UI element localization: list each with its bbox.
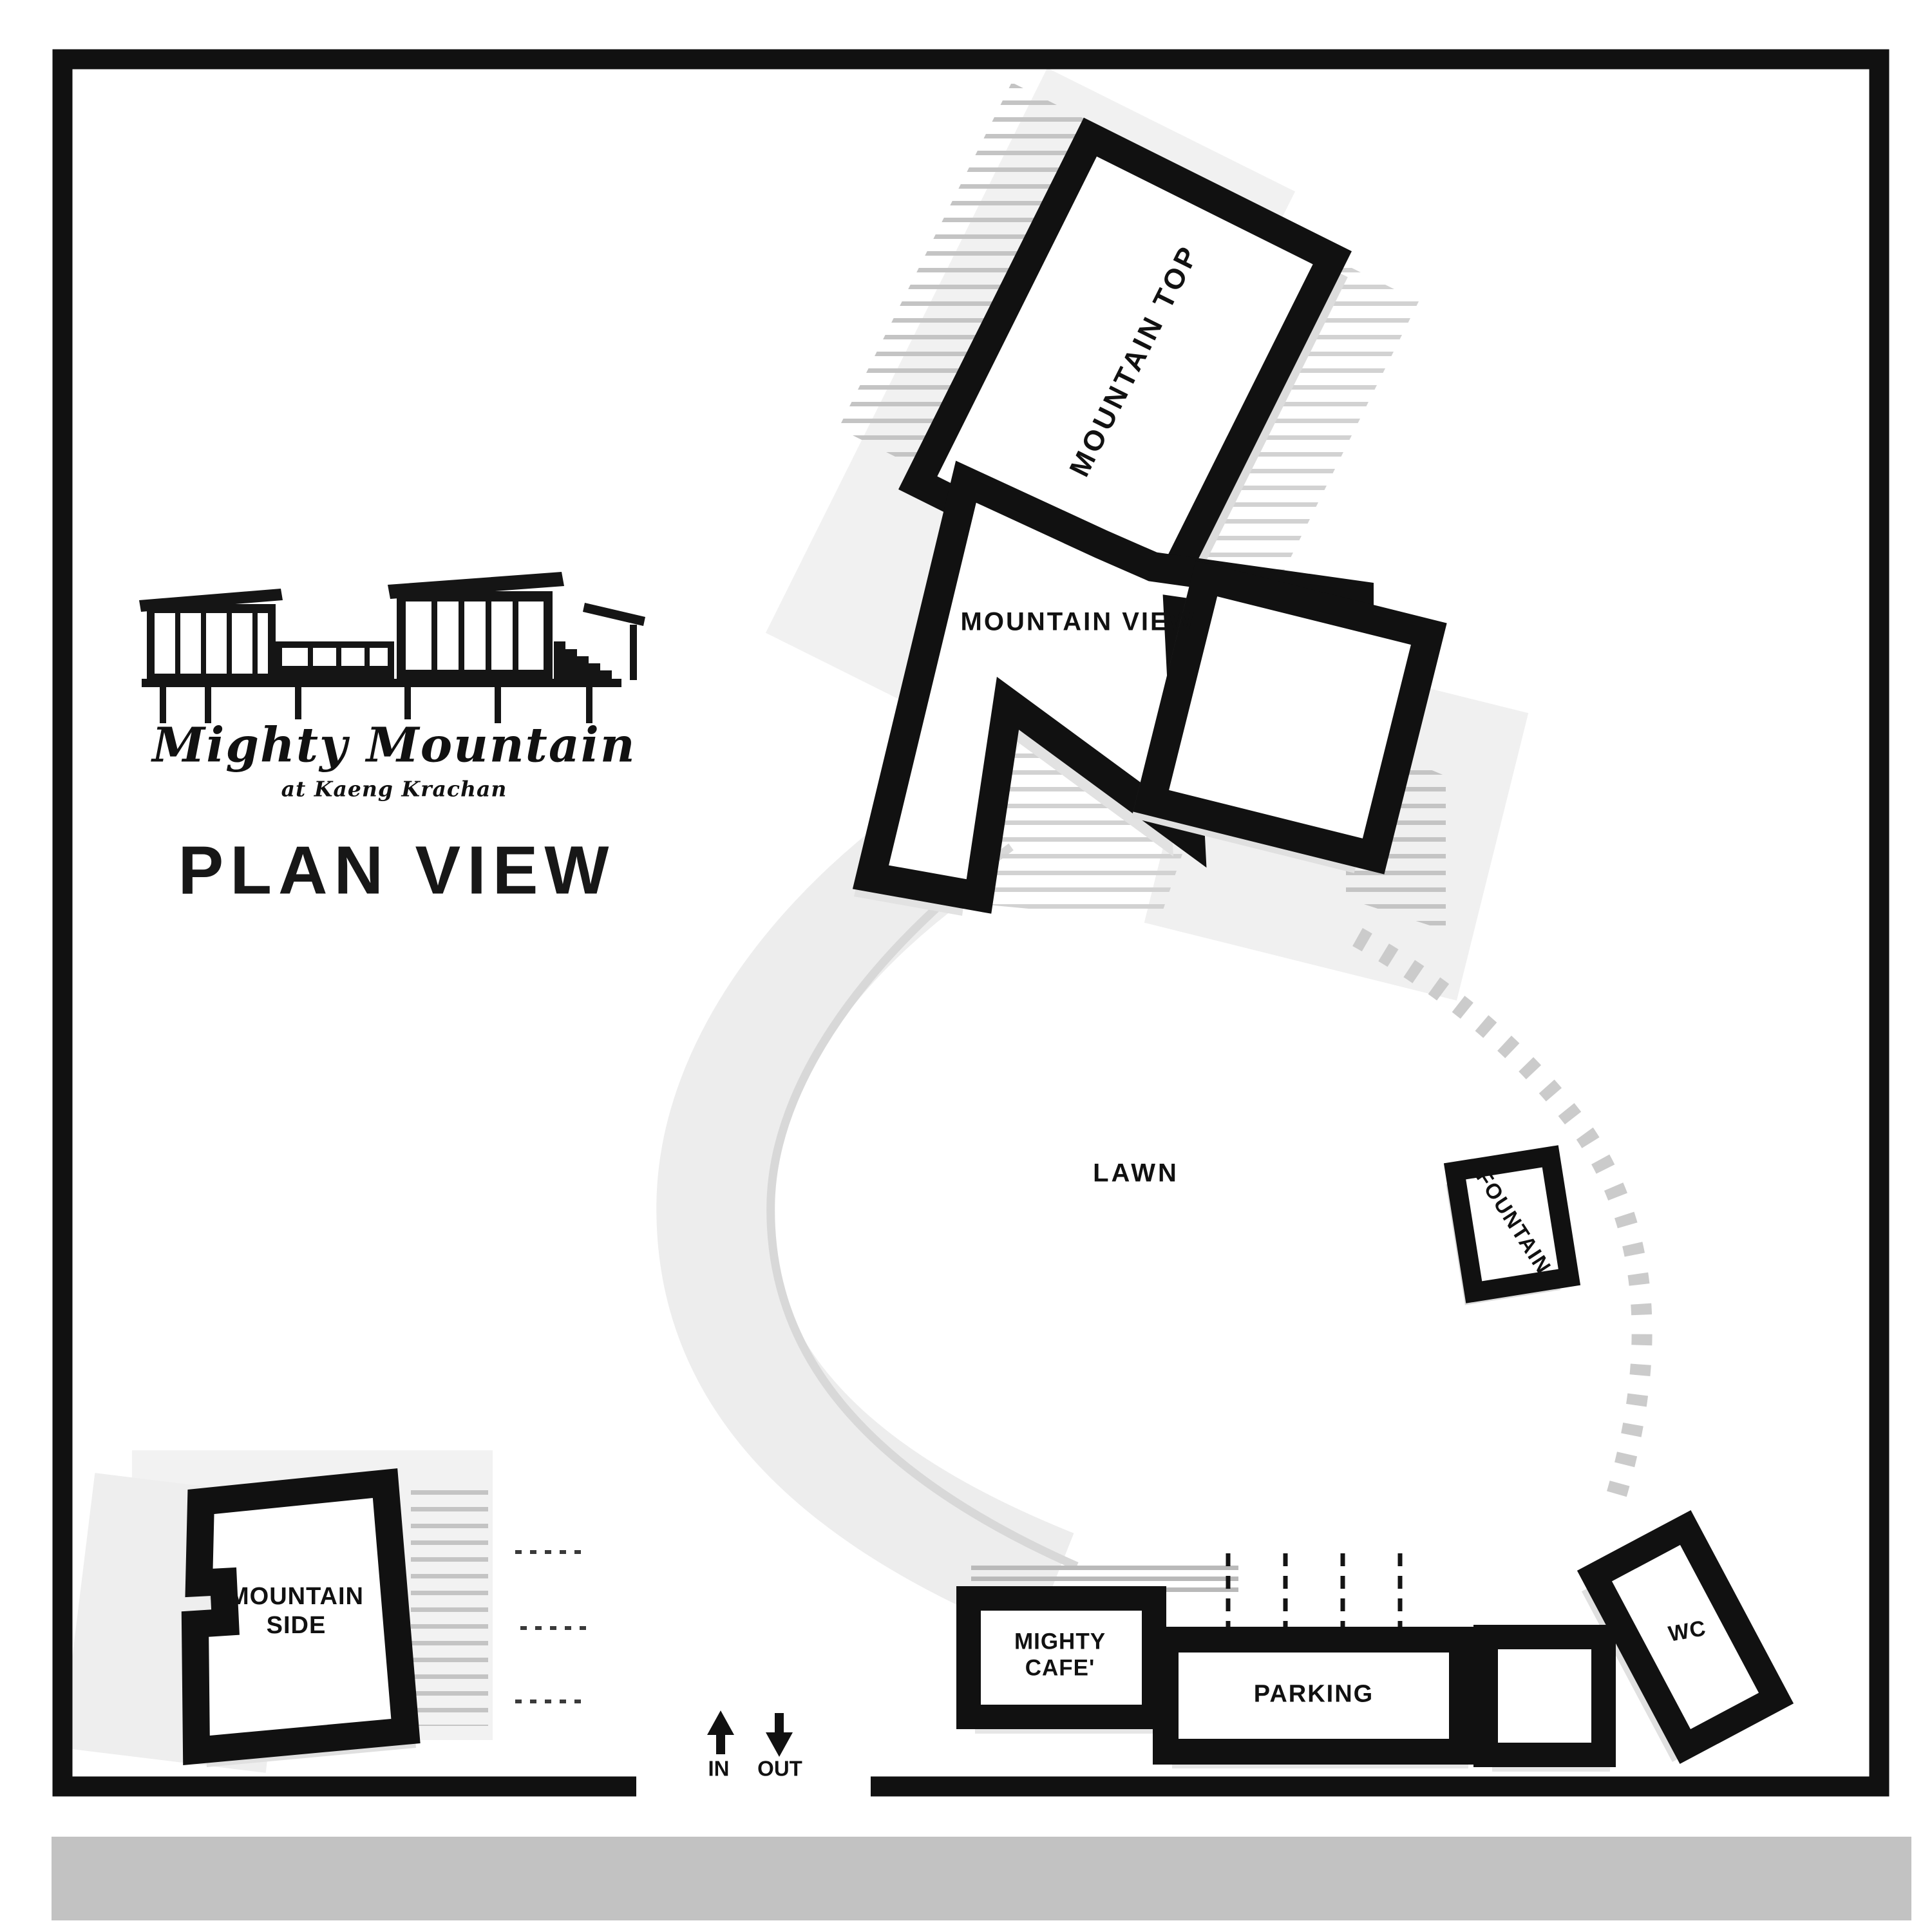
label-mountain-side: MOUNTAIN SIDE xyxy=(229,1582,364,1640)
in-arrow-icon xyxy=(707,1710,734,1754)
label-mighty-cafe-line2: CAFE' xyxy=(1014,1655,1106,1681)
plan-graphics xyxy=(0,0,1932,1932)
road xyxy=(52,1837,1911,1920)
brand-tagline: at Kaeng Krachan xyxy=(281,777,507,802)
label-entrance-in: IN xyxy=(708,1757,730,1782)
site-plan-canvas: Mighty Mountain at Kaeng Krachan PLAN VI… xyxy=(0,0,1932,1932)
logo-house-icon xyxy=(135,565,650,732)
label-entrance-out: OUT xyxy=(757,1757,802,1782)
label-mountain-side-line1: MOUNTAIN xyxy=(229,1582,364,1611)
walkway-path xyxy=(713,835,1077,1586)
page-title: PLAN VIEW xyxy=(178,830,616,911)
brand-name: Mighty Mountain xyxy=(152,717,636,773)
label-parking: PARKING xyxy=(1254,1680,1374,1709)
building-small-square xyxy=(1486,1637,1610,1772)
label-mountain-side-line2: SIDE xyxy=(229,1611,364,1640)
dotted-guide-lines xyxy=(515,1552,588,1701)
label-mighty-cafe: MIGHTY CAFE' xyxy=(1014,1629,1106,1682)
label-mountain-view: MOUNTAIN VIEW xyxy=(961,607,1196,637)
out-arrow-icon xyxy=(766,1713,793,1757)
label-lawn: LAWN xyxy=(1093,1158,1179,1188)
label-mighty-cafe-line1: MIGHTY xyxy=(1014,1629,1106,1655)
